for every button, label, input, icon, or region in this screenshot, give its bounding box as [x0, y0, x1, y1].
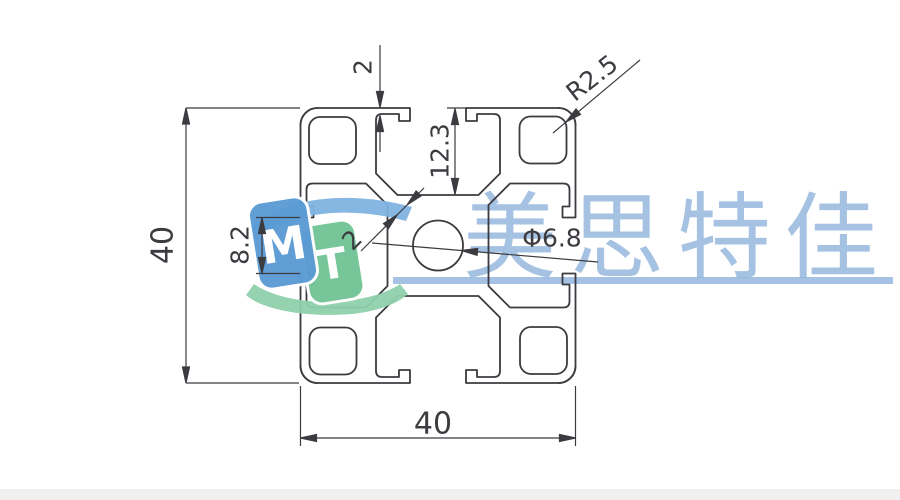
arrowhead-down-left: [407, 191, 421, 205]
dim-lip-thickness-label: 2: [349, 59, 378, 75]
arrowhead-up: [183, 108, 190, 124]
arrowhead-up: [377, 116, 384, 132]
arrowhead-right: [560, 435, 576, 442]
dim-lip-thickness: 2: [349, 45, 384, 152]
dim-overall-height-label: 40: [146, 226, 181, 264]
watermark: 美思特佳: [393, 184, 893, 293]
watermark-underline: [393, 277, 893, 284]
center-bore-circle: [413, 221, 463, 271]
corner-hole: [520, 327, 567, 374]
corner-hole: [520, 117, 567, 164]
logo-letter-m: M: [256, 215, 310, 275]
dim-overall-width: 40: [301, 386, 576, 446]
dimensions: 40 40 2 12.3: [146, 45, 641, 446]
dim-slot-depth: 12.3: [426, 108, 467, 195]
profile-technical-drawing: 美思特佳 T M: [0, 0, 900, 500]
arrowhead-down: [377, 92, 384, 108]
dim-corner-radius: R2.5: [553, 49, 640, 133]
arrowhead-down: [183, 367, 190, 383]
arrowhead-up: [452, 109, 459, 125]
dim-slot-opening-label: 8.2: [226, 225, 255, 265]
corner-hole: [309, 117, 356, 164]
corner-hole: [310, 328, 357, 375]
arrowhead-down: [452, 179, 459, 195]
arrowhead-left: [301, 435, 317, 442]
dim-center-hole-label: Φ6.8: [522, 224, 581, 253]
dim-corner-radius-label: R2.5: [561, 49, 624, 107]
logo-tile-m: M: [246, 195, 319, 291]
drawing-canvas: 美思特佳 T M: [0, 0, 900, 500]
dim-slot-depth-label: 12.3: [426, 123, 455, 179]
dim-overall-width-label: 40: [414, 407, 452, 442]
footer-bar: [0, 489, 900, 500]
